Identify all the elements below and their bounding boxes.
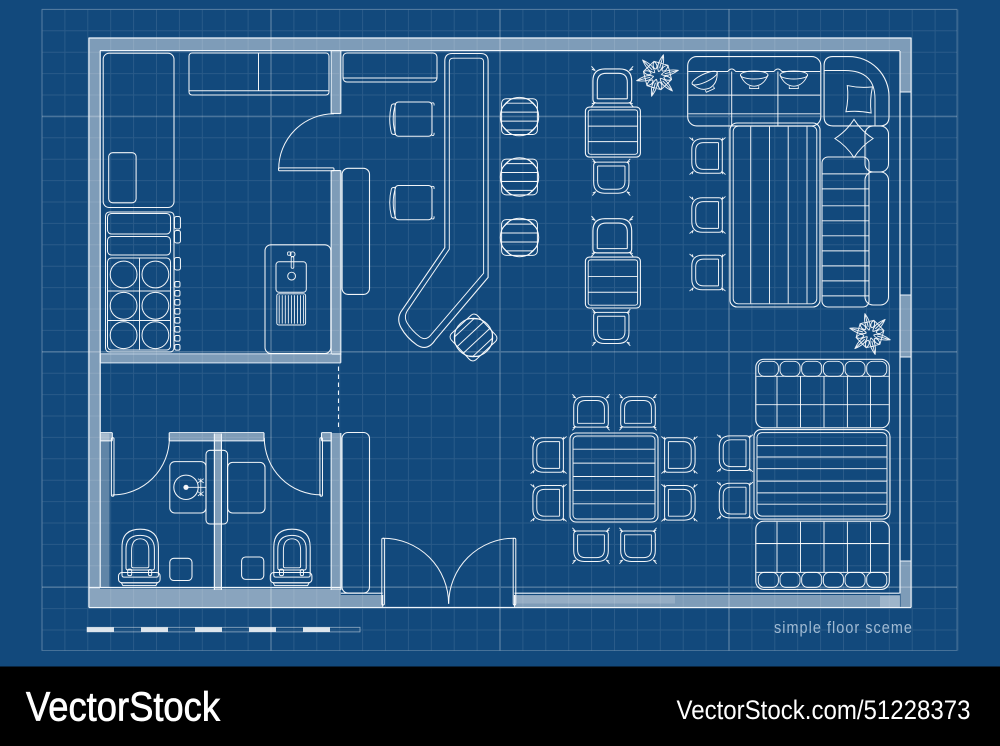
svg-text:VectorStock.com/51228373: VectorStock.com/51228373: [677, 695, 971, 725]
svg-text:VectorStock: VectorStock: [26, 684, 220, 730]
svg-text:simple floor sceme: simple floor sceme: [774, 619, 913, 637]
